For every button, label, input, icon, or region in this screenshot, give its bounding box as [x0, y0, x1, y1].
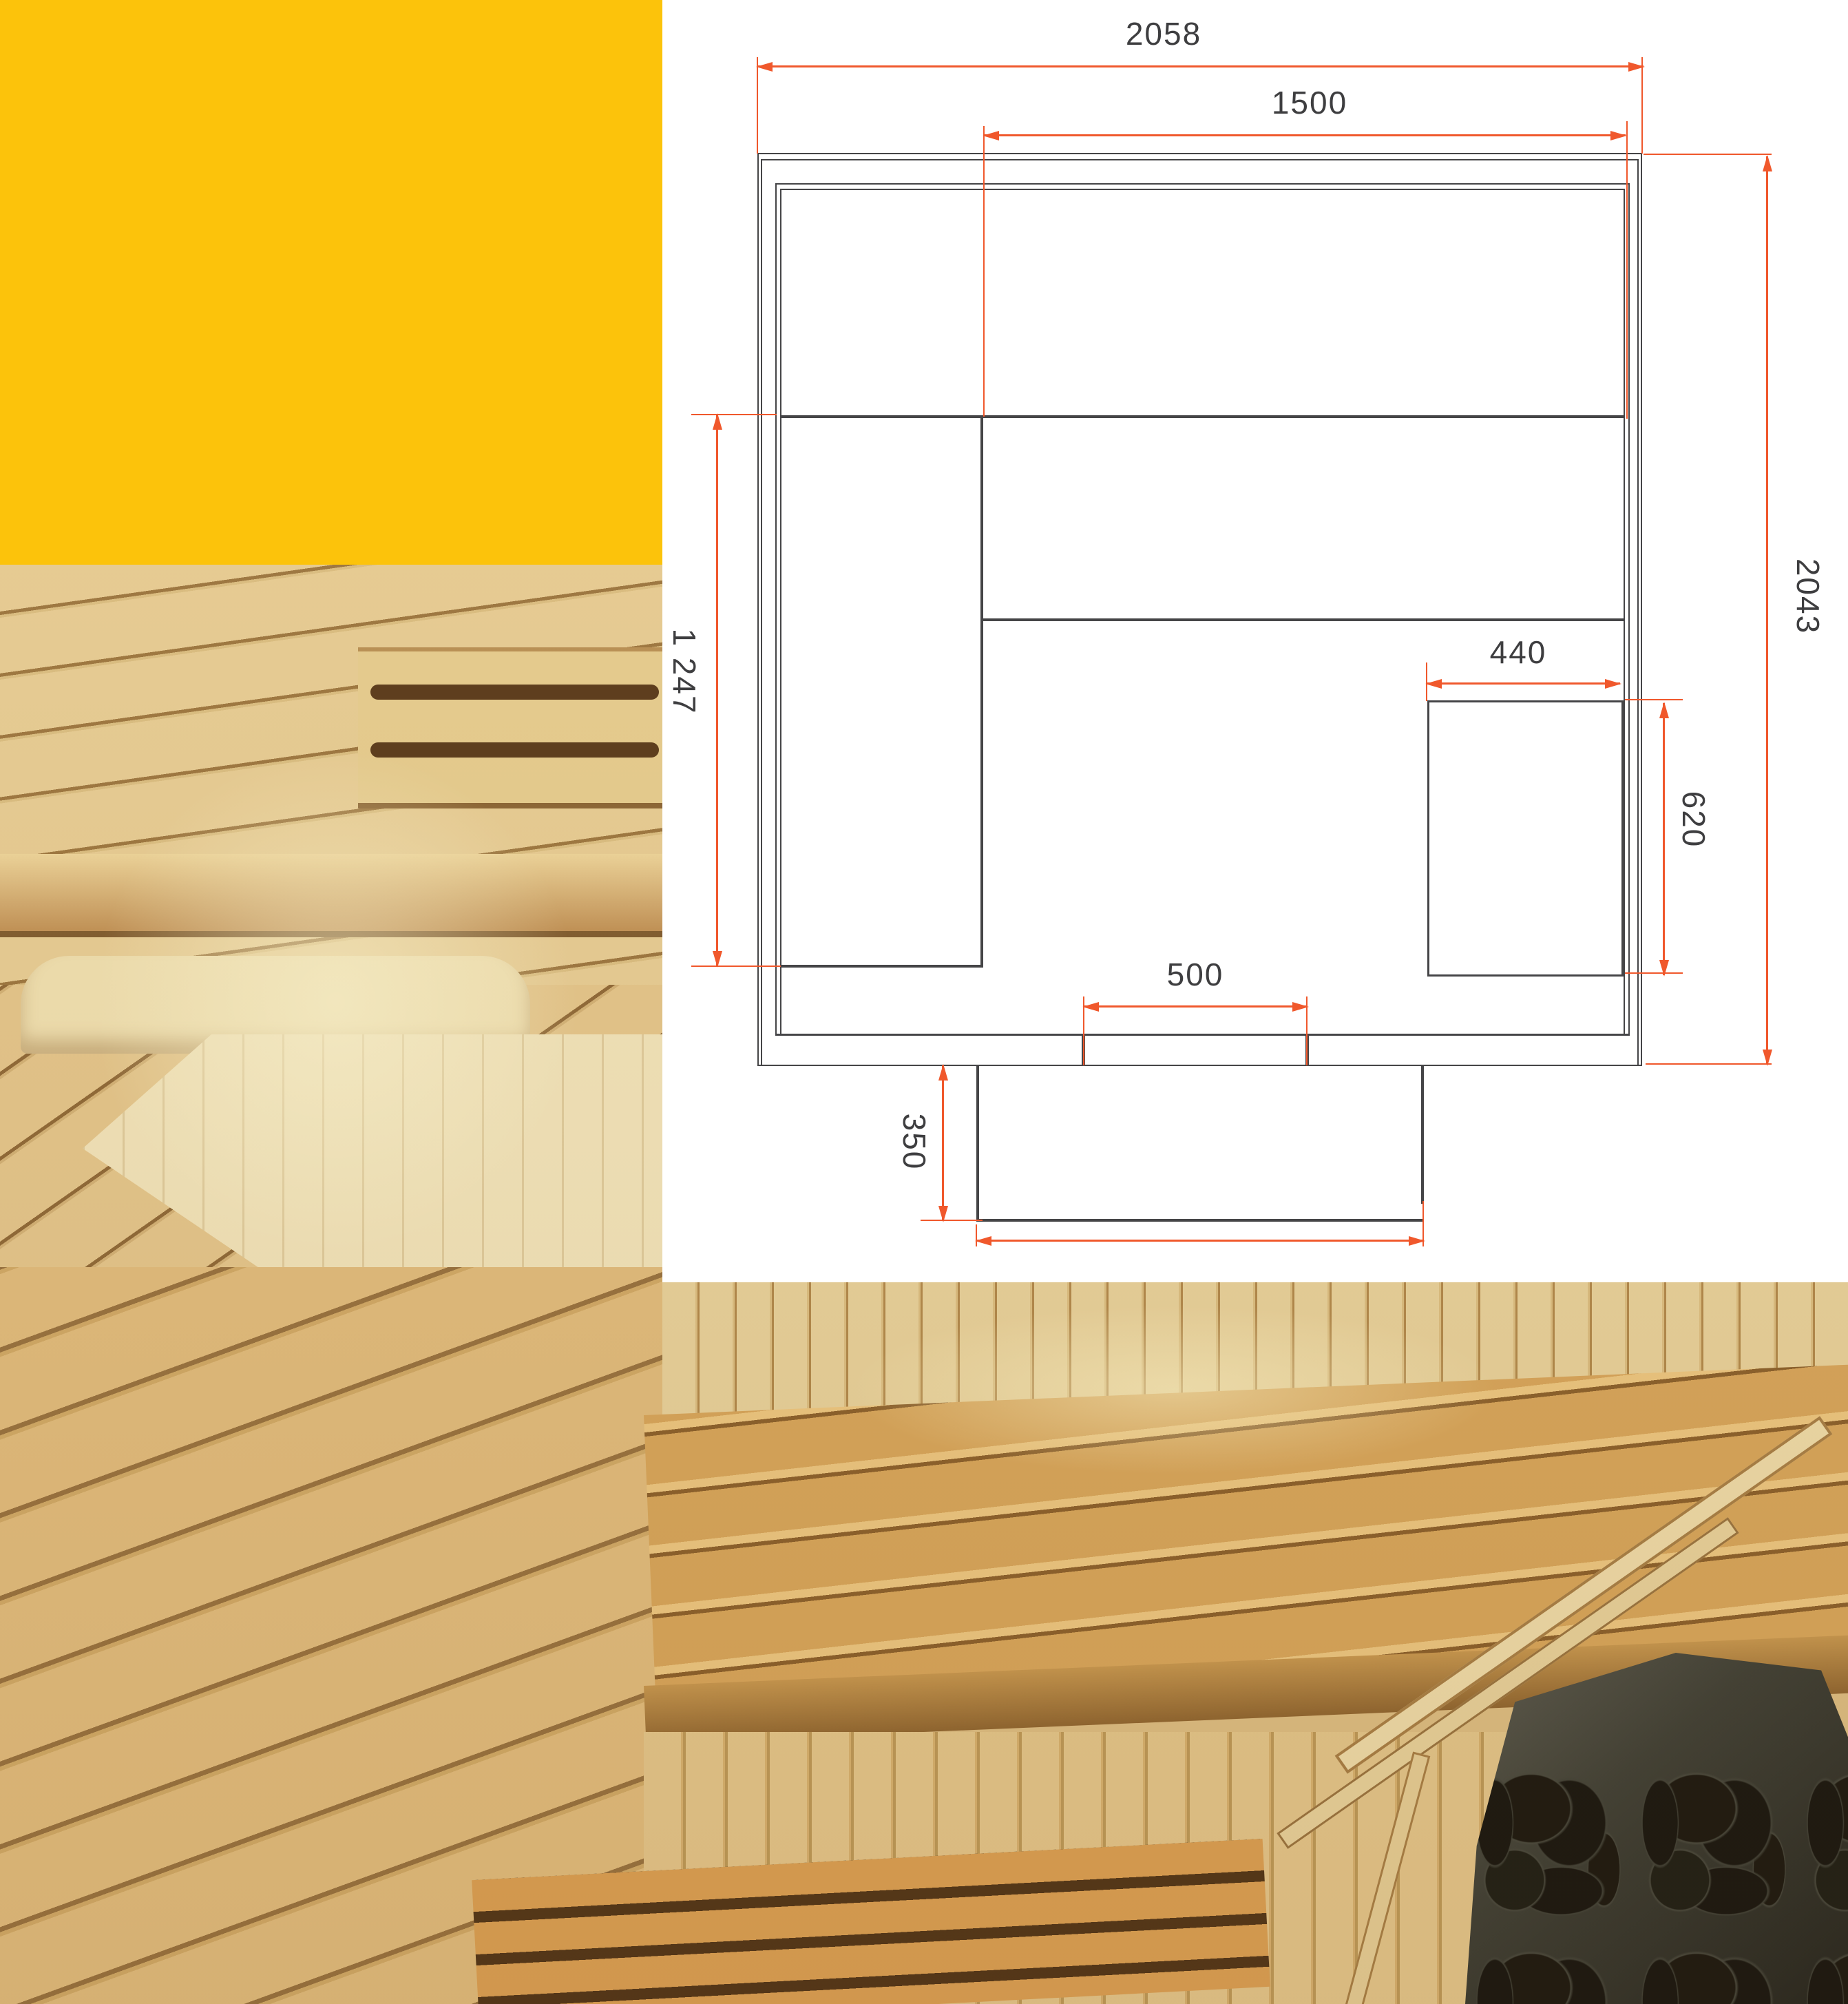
- dim-step-depth-ext-bottom: [921, 1220, 983, 1221]
- dim-heater-width-line: [1427, 682, 1620, 685]
- dim-left-bench-ext-top: [691, 414, 777, 415]
- dim-overall-depth-ext-bottom: [1646, 1063, 1772, 1065]
- dim-left-bench-ext-bottom: [691, 966, 781, 967]
- dim-label-overall-depth: 2043: [1791, 528, 1825, 665]
- dim-label-heater-width: 440: [1456, 635, 1580, 671]
- heater-outline: [1427, 700, 1624, 977]
- dim-step-width-ext-left: [976, 1224, 977, 1246]
- page-root: { "palette": { "yellow_panel": "#FCC30B"…: [0, 0, 1848, 2004]
- dim-label-step-depth: 350: [897, 1073, 932, 1211]
- dim-overall-width-ext-left: [757, 57, 758, 154]
- dim-label-overall-width: 2058: [1102, 17, 1226, 52]
- back-bench-front-edge: [780, 415, 1625, 418]
- middle-bench-front-edge: [983, 618, 1625, 621]
- dim-overall-depth-ext-top: [1644, 154, 1772, 155]
- dim-label-left-bench-length: 1 247: [667, 603, 702, 740]
- dim-step-depth-line: [942, 1065, 944, 1221]
- dim-heater-width-ext-left: [1426, 662, 1427, 701]
- dim-heater-depth-ext-top: [1625, 699, 1683, 700]
- dim-back-bench-width-line: [984, 134, 1626, 136]
- yellow-panel: [0, 0, 662, 565]
- dim-back-bench-ext-left: [983, 126, 985, 417]
- dim-overall-width-line: [757, 65, 1644, 67]
- bench-platform-bottom-line: [775, 1034, 1630, 1036]
- dim-door-width-line: [1084, 1005, 1308, 1008]
- dim-door-width-ext-left: [1083, 996, 1084, 1065]
- dim-heater-depth-line: [1663, 703, 1665, 975]
- dim-door-width-ext-right: [1306, 996, 1308, 1065]
- dim-step-width-line: [976, 1240, 1424, 1242]
- dim-label-door-width: 500: [1133, 957, 1257, 993]
- dim-label-back-bench-width: 1500: [1248, 85, 1372, 121]
- dim-label-heater-depth: 620: [1677, 751, 1711, 888]
- dim-overall-width-ext-right: [1641, 57, 1643, 154]
- left-bench-end-edge: [780, 965, 983, 968]
- dim-step-width-ext-right: [1422, 1201, 1424, 1246]
- entrance-step-right-edge: [1421, 1065, 1424, 1204]
- dim-heater-depth-ext-bottom: [1625, 972, 1683, 974]
- entrance-step-bottom-edge: [976, 1219, 1424, 1222]
- dim-overall-depth-line: [1766, 156, 1768, 1065]
- dim-left-bench-length-line: [716, 415, 718, 966]
- entrance-step-left-edge: [976, 1065, 979, 1222]
- dim-back-bench-ext-right: [1626, 121, 1628, 419]
- left-bench-side-edge: [980, 417, 983, 968]
